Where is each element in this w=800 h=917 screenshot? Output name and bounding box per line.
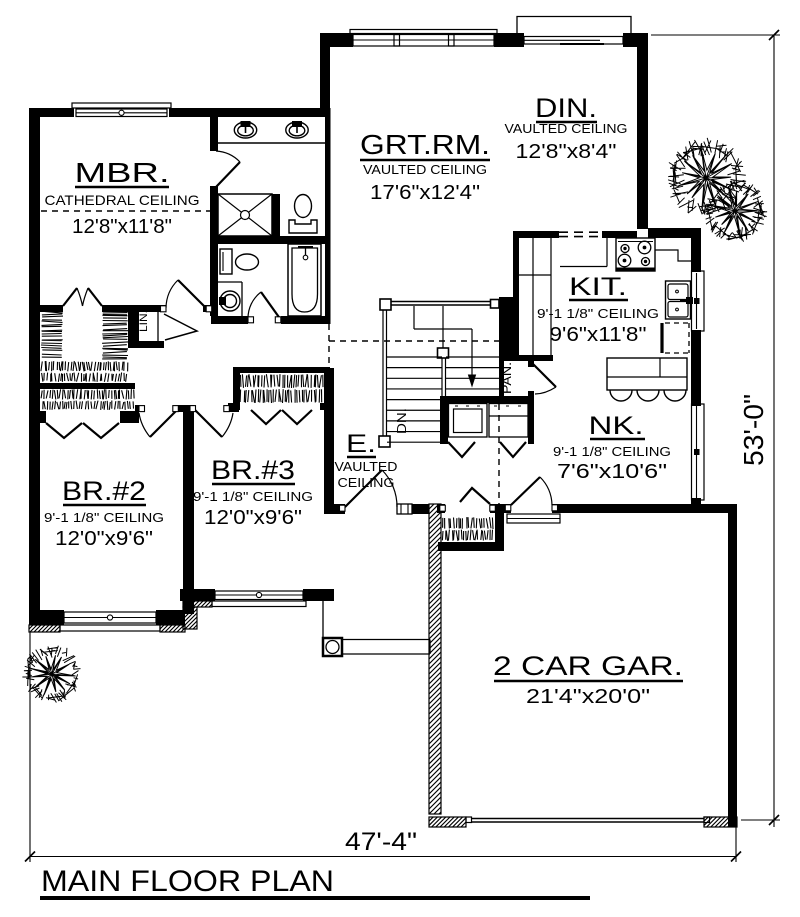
- svg-text:MBR.: MBR.: [75, 157, 170, 188]
- svg-text:9'-1 1/8" CEILING: 9'-1 1/8" CEILING: [193, 490, 313, 504]
- svg-text:DN.: DN.: [394, 408, 409, 434]
- svg-text:VAULTED CEILING: VAULTED CEILING: [363, 162, 487, 177]
- svg-text:CEILING: CEILING: [338, 476, 395, 490]
- svg-text:12'0"x9'6": 12'0"x9'6": [55, 528, 153, 550]
- svg-text:MAIN FLOOR PLAN: MAIN FLOOR PLAN: [41, 865, 334, 898]
- svg-text:BR.#2: BR.#2: [62, 476, 146, 506]
- svg-text:12'8"x8'4": 12'8"x8'4": [516, 141, 617, 163]
- svg-text:47'-4": 47'-4": [345, 828, 417, 856]
- svg-text:9'-1 1/8" CEILING: 9'-1 1/8" CEILING: [44, 511, 164, 525]
- svg-text:VAULTED CEILING: VAULTED CEILING: [505, 121, 628, 136]
- svg-text:9'-1 1/8" CEILING: 9'-1 1/8" CEILING: [553, 445, 671, 459]
- svg-text:7'6"x10'6": 7'6"x10'6": [557, 461, 667, 483]
- svg-text:2 CAR GAR.: 2 CAR GAR.: [493, 651, 683, 681]
- svg-text:12'0"x9'6": 12'0"x9'6": [204, 507, 302, 529]
- svg-text:12'8"x11'8": 12'8"x11'8": [72, 216, 172, 238]
- svg-text:DIN.: DIN.: [535, 93, 597, 123]
- svg-text:KIT.: KIT.: [569, 273, 627, 301]
- svg-text:GRT.RM.: GRT.RM.: [360, 129, 490, 160]
- svg-text:9'6"x11'8": 9'6"x11'8": [550, 324, 647, 346]
- svg-text:21'4"x20'0": 21'4"x20'0": [526, 686, 650, 708]
- svg-text:LIN.: LIN.: [138, 310, 150, 332]
- svg-text:NK.: NK.: [589, 412, 644, 440]
- svg-text:9'-1 1/8" CEILING: 9'-1 1/8" CEILING: [537, 307, 659, 321]
- svg-text:VAULTED: VAULTED: [335, 460, 398, 474]
- svg-text:E.: E.: [346, 430, 376, 458]
- svg-text:53'-0": 53'-0": [738, 394, 769, 466]
- svg-text:BR.#3: BR.#3: [211, 455, 295, 485]
- svg-text:17'6"x12'4": 17'6"x12'4": [370, 182, 480, 204]
- svg-text:CATHEDRAL CEILING: CATHEDRAL CEILING: [45, 192, 200, 208]
- svg-text:PAN.: PAN.: [500, 362, 514, 394]
